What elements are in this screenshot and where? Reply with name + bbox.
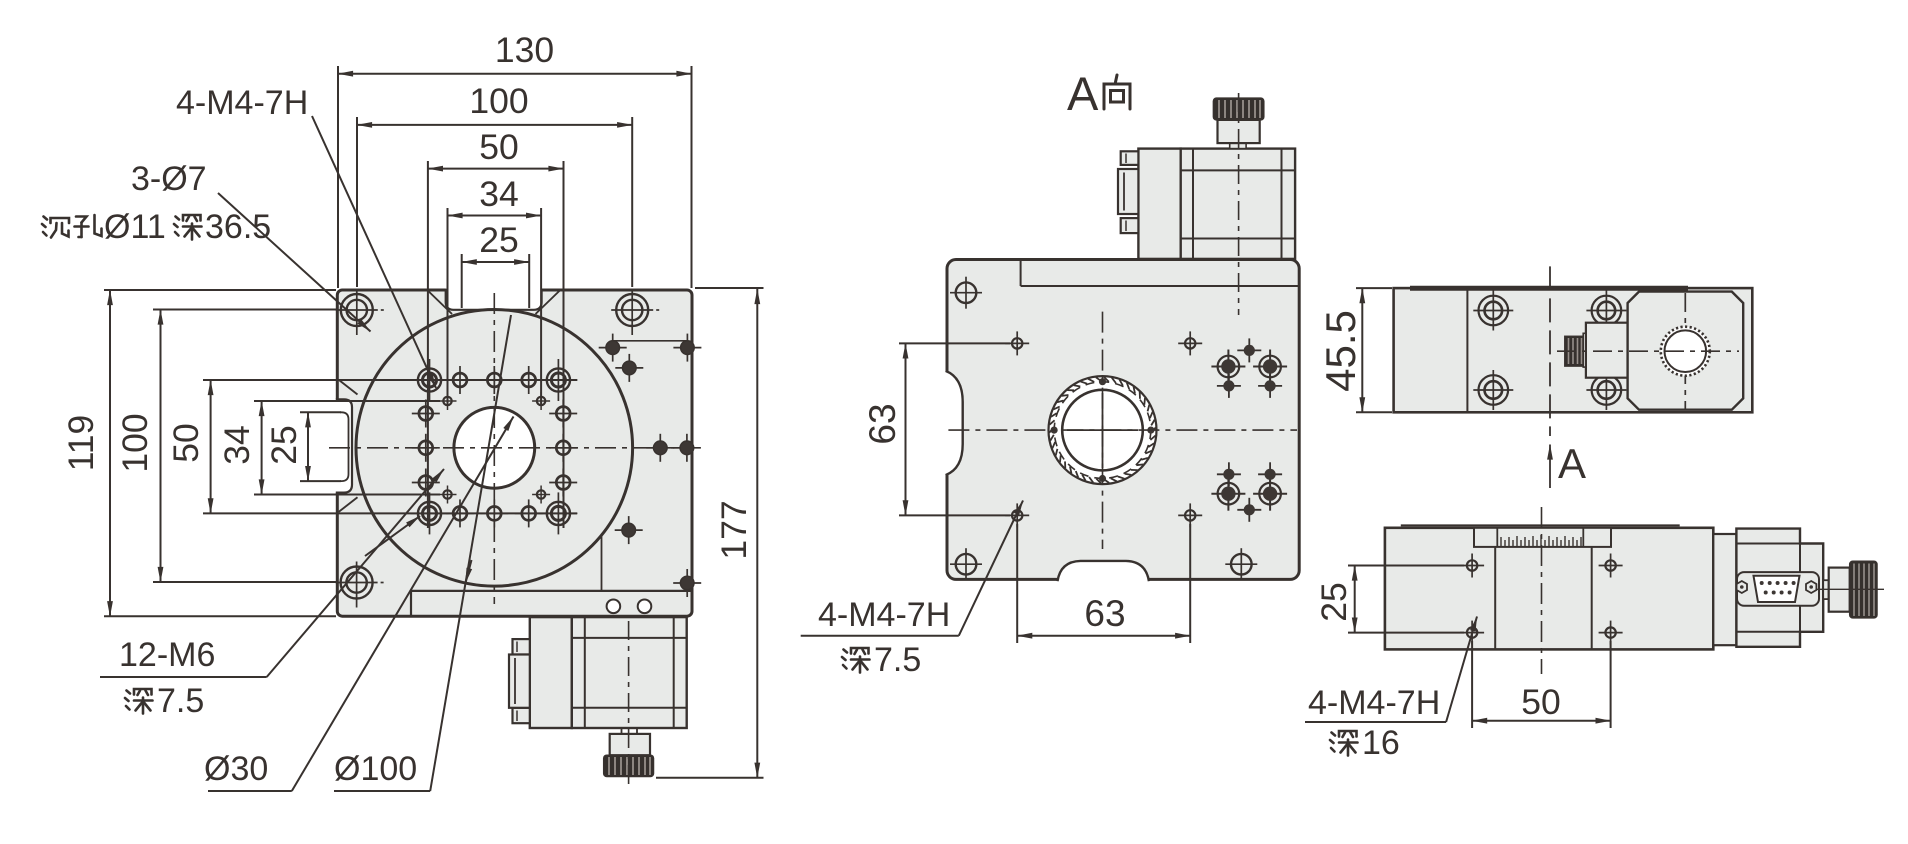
svg-text:63: 63 — [862, 403, 903, 444]
svg-text:25: 25 — [264, 425, 304, 465]
svg-text:4-M4-7H: 4-M4-7H — [176, 84, 308, 122]
svg-text:50: 50 — [166, 423, 206, 463]
svg-text:63: 63 — [1084, 593, 1125, 634]
svg-text:130: 130 — [495, 30, 554, 70]
svg-text:100: 100 — [115, 413, 155, 472]
svg-text:25: 25 — [1314, 582, 1354, 622]
svg-text:45.5: 45.5 — [1317, 310, 1364, 392]
svg-text:50: 50 — [479, 127, 519, 167]
svg-text:36.5: 36.5 — [205, 208, 271, 246]
svg-text:7.5: 7.5 — [874, 641, 921, 679]
svg-text:3-Ø7: 3-Ø7 — [131, 160, 207, 198]
svg-text:Ø11: Ø11 — [104, 208, 166, 246]
svg-text:34: 34 — [479, 174, 519, 214]
svg-text:Ø30: Ø30 — [204, 750, 268, 788]
svg-text:177: 177 — [714, 500, 754, 559]
svg-text:12-M6: 12-M6 — [119, 636, 215, 674]
svg-text:4-M4-7H: 4-M4-7H — [1308, 684, 1440, 722]
svg-text:Ø100: Ø100 — [334, 750, 417, 788]
svg-text:A: A — [1067, 67, 1099, 120]
svg-text:4-M4-7H: 4-M4-7H — [818, 596, 950, 634]
svg-text:50: 50 — [1521, 682, 1561, 722]
svg-text:119: 119 — [61, 415, 101, 472]
svg-text:7.5: 7.5 — [157, 682, 204, 720]
svg-text:100: 100 — [469, 81, 528, 121]
svg-text:A: A — [1558, 440, 1586, 487]
svg-text:34: 34 — [217, 425, 257, 465]
svg-text:25: 25 — [479, 220, 519, 260]
svg-text:16: 16 — [1362, 724, 1400, 762]
